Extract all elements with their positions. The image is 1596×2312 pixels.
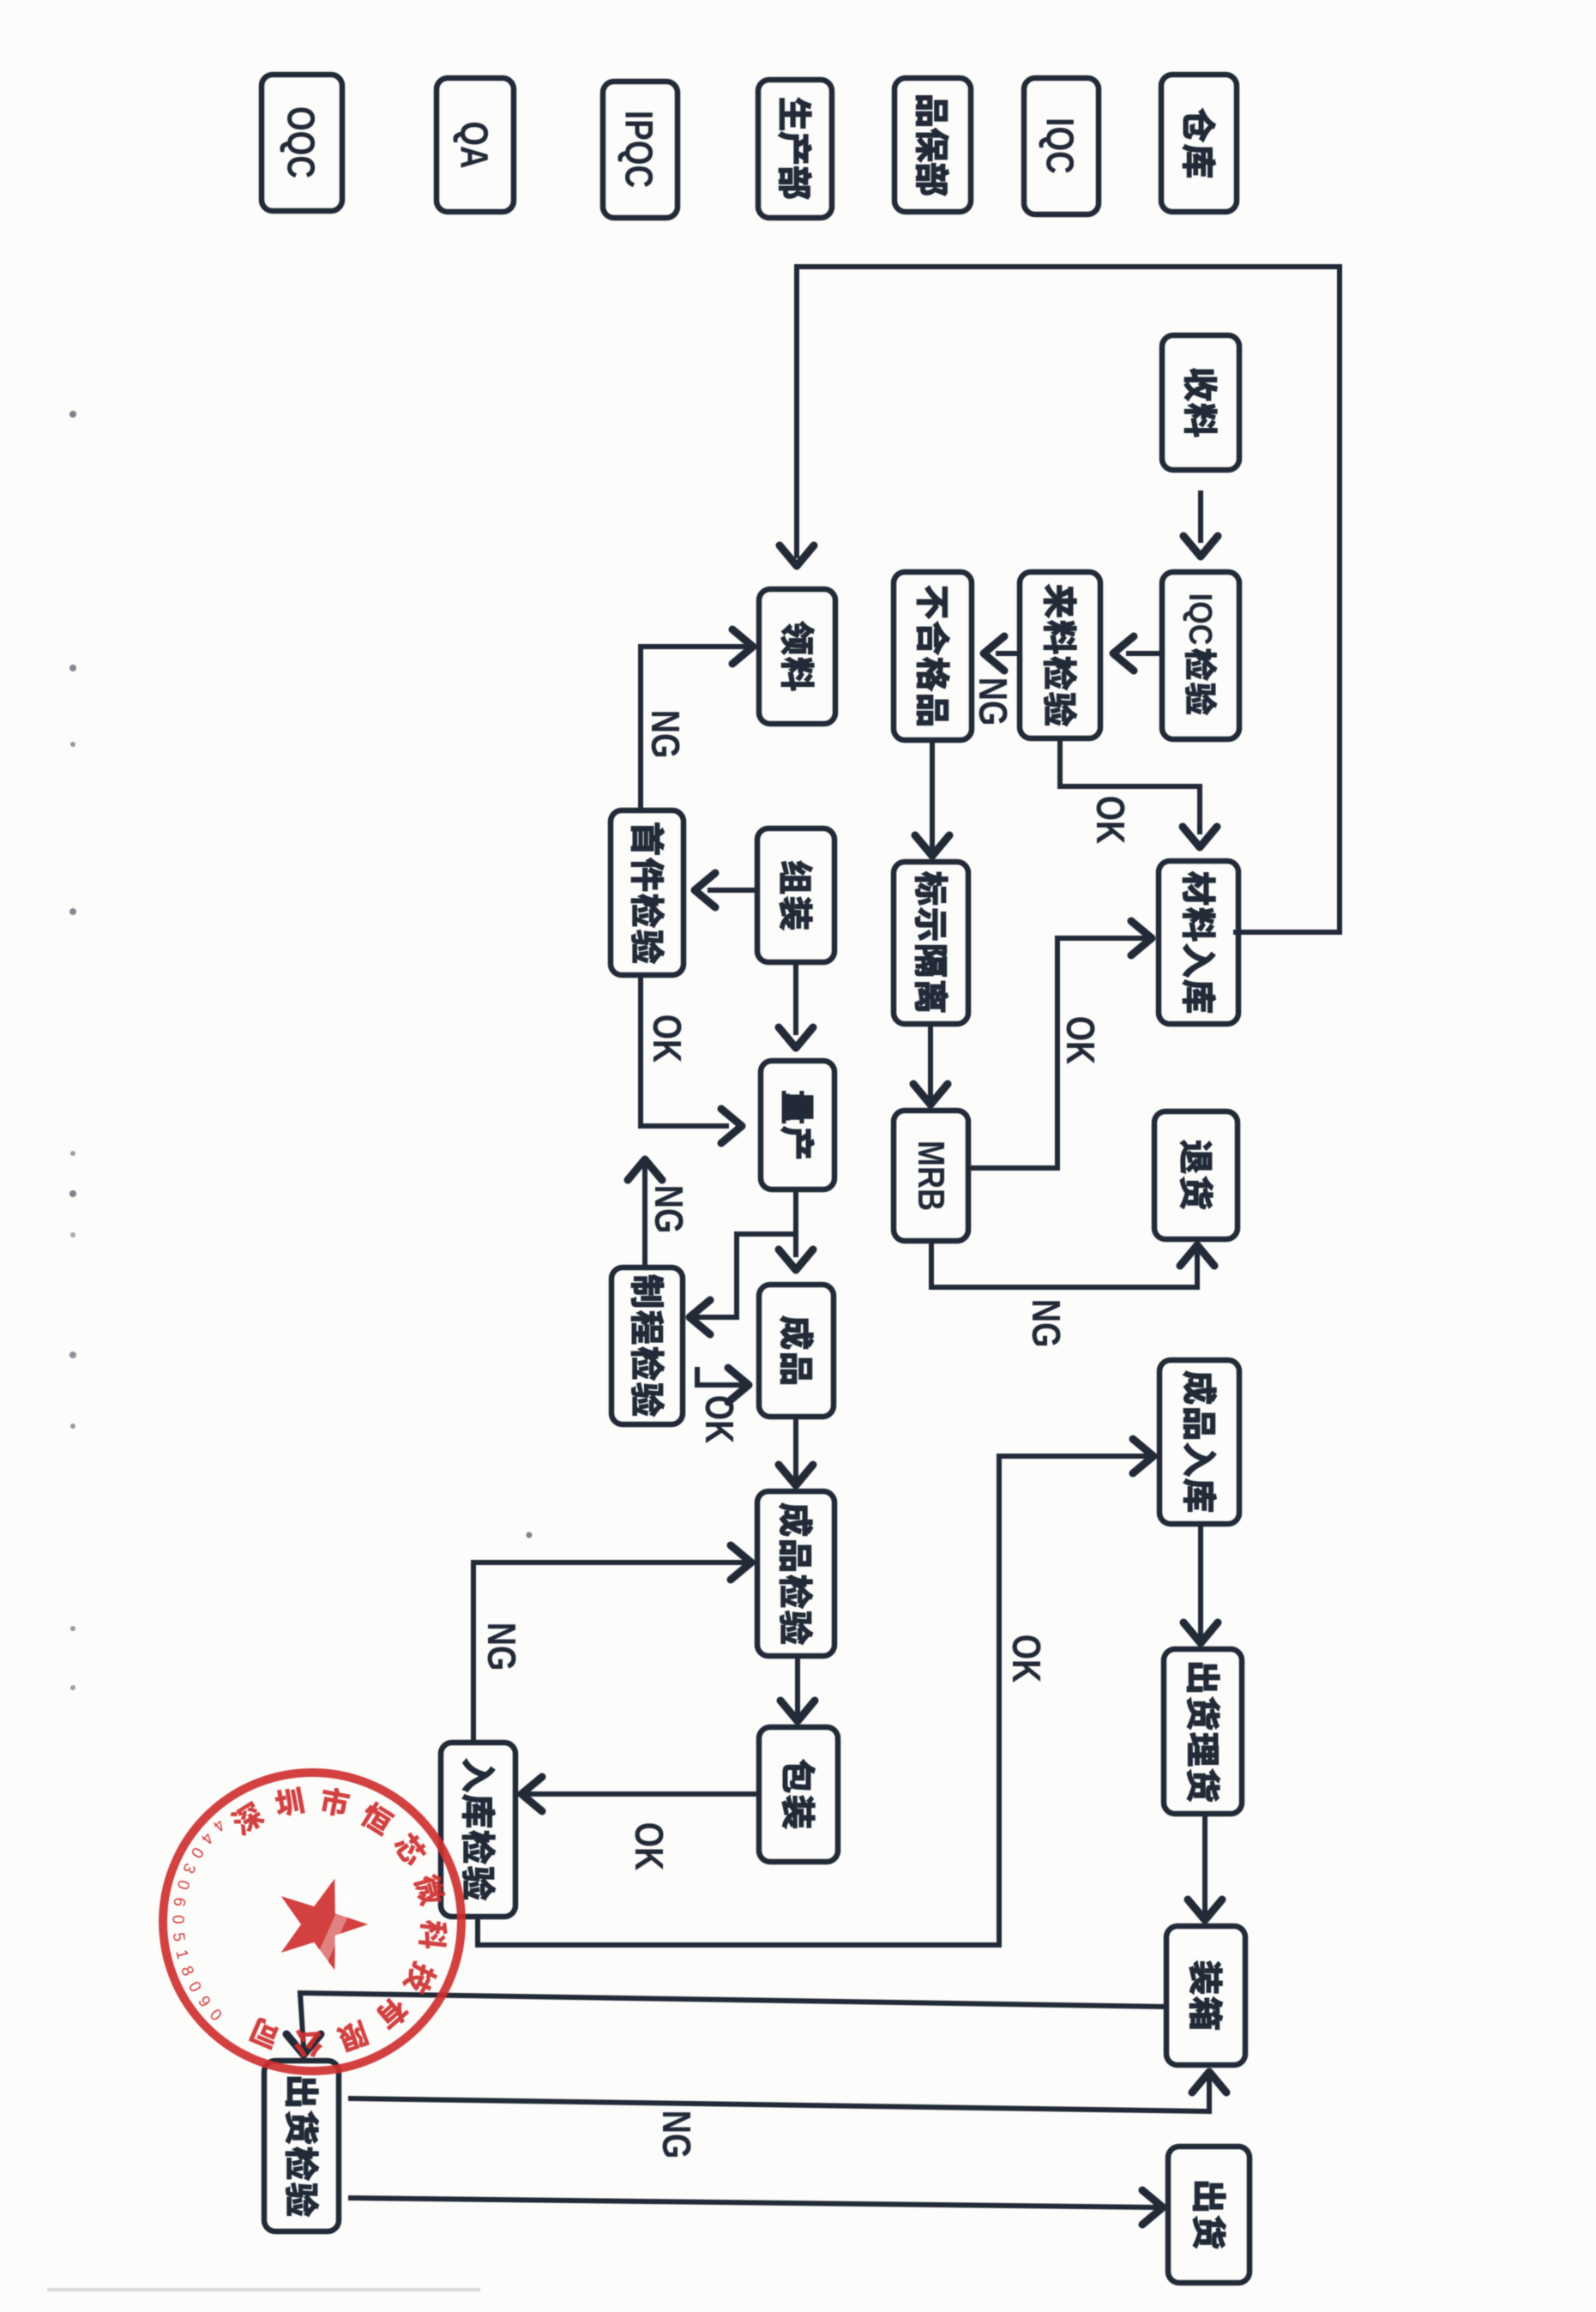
svg-text:OK: OK [1088, 796, 1132, 845]
svg-text:4: 4 [208, 1815, 228, 1835]
svg-text:5: 5 [169, 1931, 188, 1942]
svg-text:0: 0 [206, 2006, 225, 2025]
svg-text:QA: QA [453, 121, 496, 168]
svg-text:IPQC: IPQC [617, 111, 660, 188]
svg-text:NG: NG [479, 1623, 523, 1671]
svg-text:OK: OK [1004, 1635, 1048, 1683]
svg-text:IQC: IQC [1039, 117, 1081, 174]
svg-text:OK: OK [627, 1822, 671, 1871]
svg-text:0: 0 [187, 1844, 207, 1861]
svg-text:8: 8 [177, 1964, 196, 1979]
svg-text:4: 4 [196, 1829, 216, 1848]
svg-text:3: 3 [178, 1860, 198, 1875]
svg-text:9: 9 [194, 1993, 214, 2011]
svg-text:NG: NG [971, 677, 1015, 726]
svg-text:NG: NG [654, 2110, 698, 2159]
svg-text:1: 1 [172, 1948, 191, 1960]
svg-text:OK: OK [697, 1395, 741, 1444]
svg-text:NG: NG [643, 710, 687, 759]
svg-text:NG: NG [1024, 1299, 1068, 1348]
svg-text:IQC: IQC [1182, 593, 1219, 646]
svg-text:0: 0 [168, 1915, 186, 1924]
svg-text:OK: OK [645, 1015, 689, 1063]
svg-text:OK: OK [1058, 1016, 1102, 1065]
svg-text:MRB: MRB [910, 1141, 952, 1211]
svg-text:NG: NG [647, 1185, 690, 1234]
svg-text:0: 0 [173, 1878, 193, 1892]
svg-text:6: 6 [170, 1896, 189, 1908]
svg-text:0: 0 [184, 1978, 204, 1995]
svg-text:OQC: OQC [280, 106, 322, 178]
